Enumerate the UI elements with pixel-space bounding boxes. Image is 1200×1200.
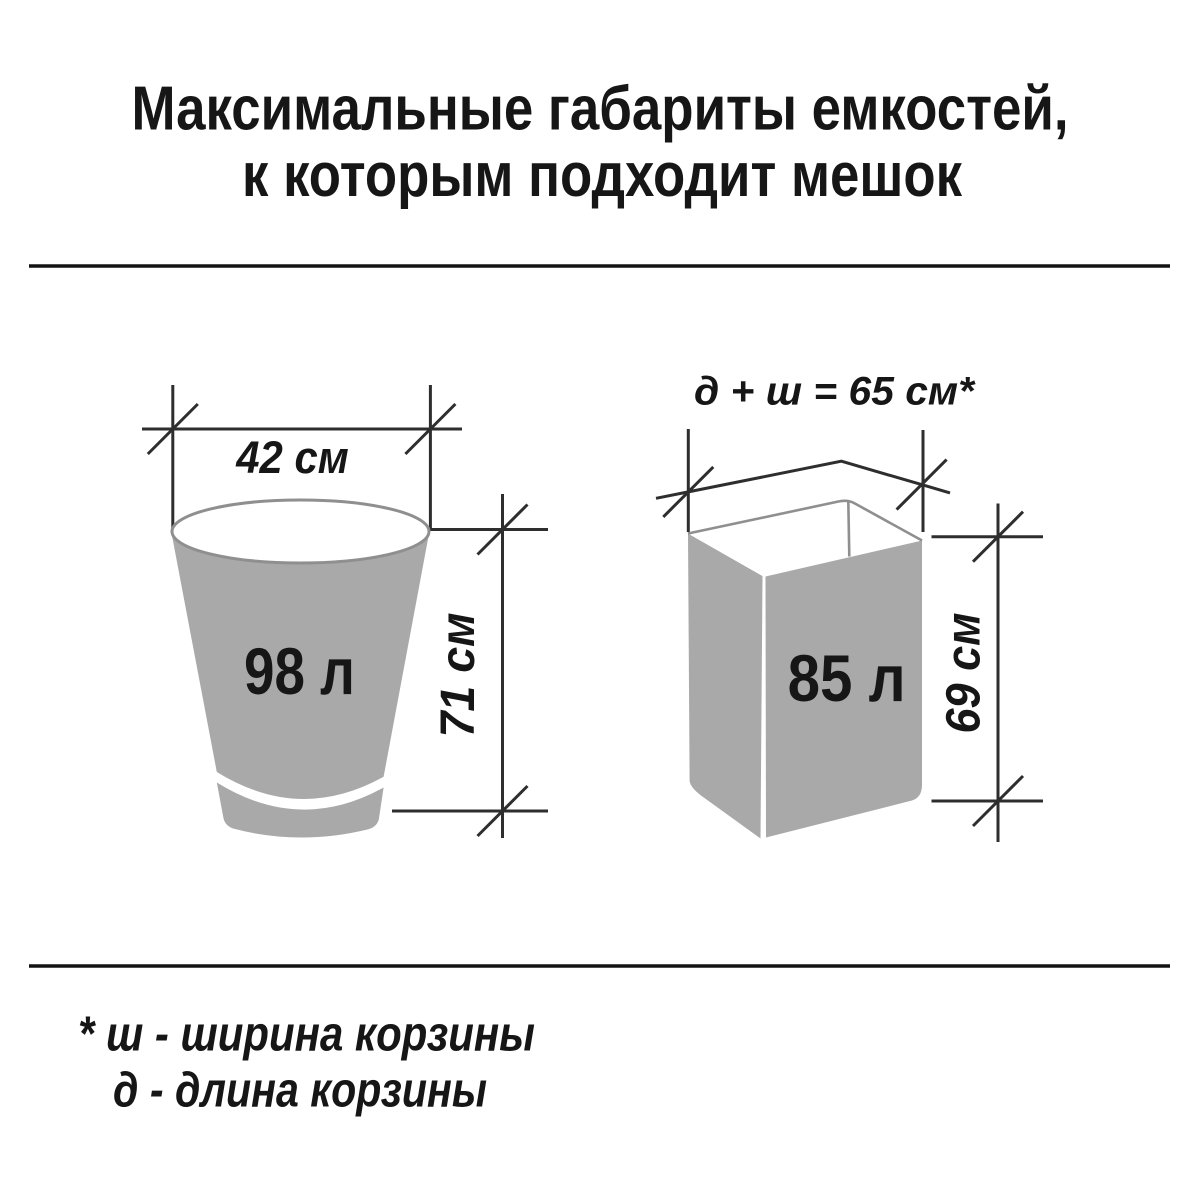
svg-text:д + ш = 65 см*: д + ш = 65 см*: [694, 370, 976, 414]
svg-text:98 л: 98 л: [244, 634, 355, 708]
svg-text:85 л: 85 л: [788, 641, 906, 715]
svg-text:к которым подходит мешок: к которым подходит мешок: [242, 140, 963, 210]
svg-text:69 см: 69 см: [937, 613, 991, 734]
svg-text:Максимальные габариты емкостей: Максимальные габариты емкостей,: [132, 74, 1069, 144]
svg-text:д - длина корзины: д - длина корзины: [113, 1063, 487, 1117]
svg-text:42 см: 42 см: [235, 432, 348, 483]
svg-text:* ш - ширина корзины: * ш - ширина корзины: [78, 1007, 535, 1061]
svg-text:71 см: 71 см: [431, 613, 485, 738]
